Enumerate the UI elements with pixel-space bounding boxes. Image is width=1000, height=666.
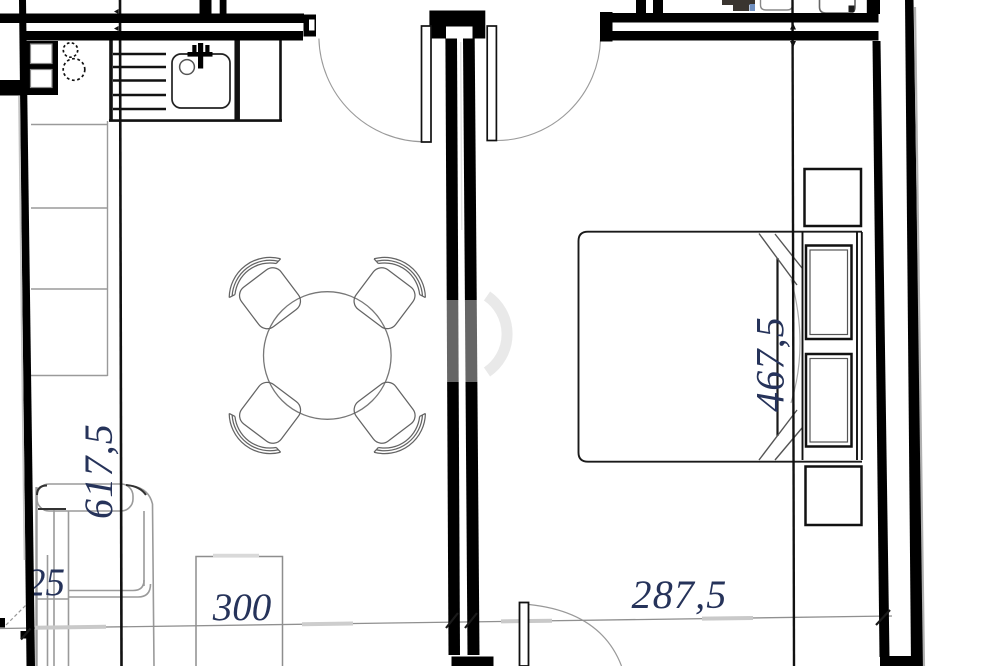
svg-text:467,5: 467,5 [748, 316, 793, 412]
svg-text:300: 300 [212, 586, 272, 629]
svg-text:287,5: 287,5 [632, 572, 728, 617]
svg-text:617,5: 617,5 [76, 423, 121, 519]
